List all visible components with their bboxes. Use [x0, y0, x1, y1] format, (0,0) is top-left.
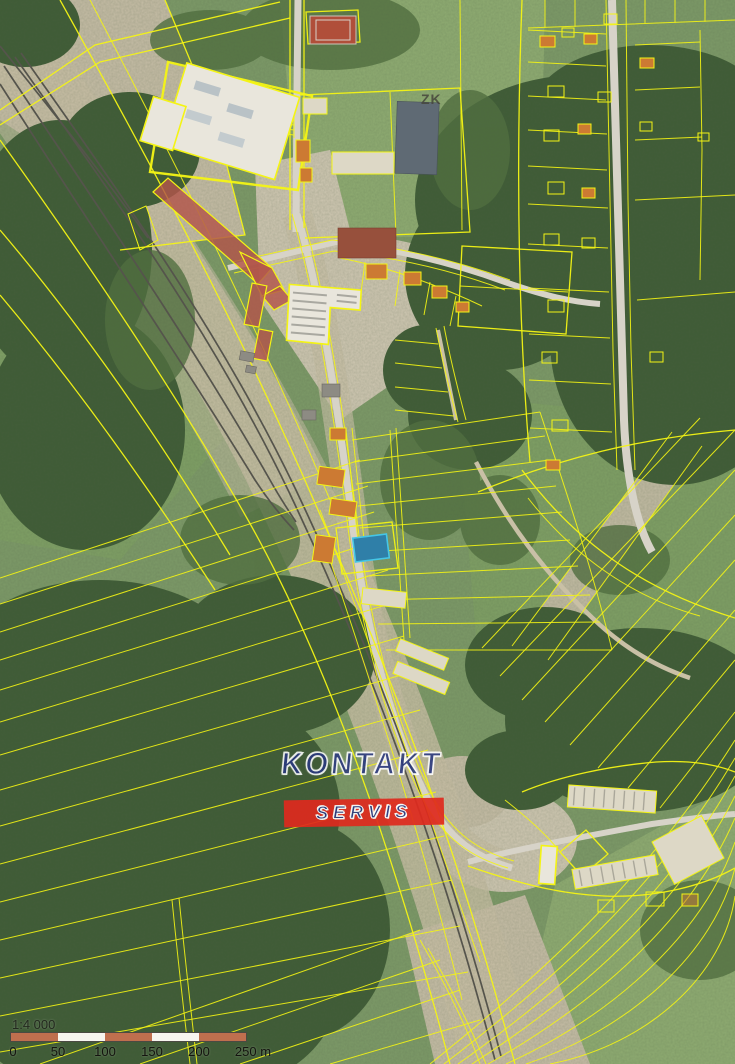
watermark-servis-banner: SERVIS [284, 798, 444, 828]
scalebar-segment [199, 1033, 246, 1041]
scalebar-segment [58, 1033, 105, 1041]
scale-tick: 100 [94, 1044, 116, 1059]
scalebar-ticks: 0 50 100 150 200 250 m [10, 1044, 270, 1060]
scalebar-segment [11, 1033, 58, 1041]
watermark-kontakt: KONTAKT [279, 746, 444, 782]
scale-tick: 200 [188, 1044, 210, 1059]
scale-tick: 0 [9, 1044, 16, 1059]
scalebar: 1:4 000 0 50 100 150 200 250 m [10, 1017, 270, 1061]
scale-tick: 250 m [235, 1044, 271, 1059]
map-canvas[interactable]: KONTAKT SERVIS ZK 1:4 000 0 50 100 150 2… [0, 0, 735, 1064]
scalebar-segment [105, 1033, 152, 1041]
swimming-pool [353, 534, 390, 562]
scale-tick: 50 [51, 1044, 65, 1059]
watermark-servis-text: SERVIS [316, 801, 412, 824]
attribution-watermark: ZK [421, 91, 442, 107]
scale-ratio-label: 1:4 000 [12, 1017, 55, 1032]
aerial-basemap [0, 0, 735, 1064]
scalebar-track [10, 1032, 247, 1042]
scale-tick: 150 [141, 1044, 163, 1059]
scalebar-segment [152, 1033, 199, 1041]
tennis-court [310, 16, 356, 44]
